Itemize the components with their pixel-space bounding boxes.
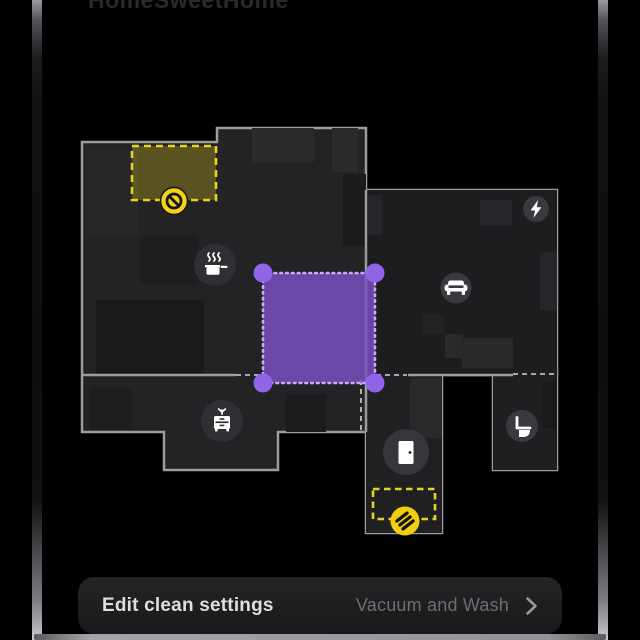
zone-handle-bottom-left[interactable]: [254, 374, 273, 393]
robot-vacuum-map-screen: HomeSweetHome: [0, 0, 640, 640]
phone-bezel-bottom: [34, 634, 606, 640]
dresser-icon[interactable]: [201, 400, 243, 442]
couch-icon[interactable]: [441, 273, 472, 304]
no-mop-stripes-icon[interactable]: [391, 507, 420, 536]
door-icon[interactable]: [383, 429, 429, 475]
lightning-bolt-icon[interactable]: [523, 196, 549, 222]
toilet-icon[interactable]: [506, 410, 538, 442]
clean-mode-label: Vacuum and Wash: [356, 595, 509, 616]
bottom-action-bar: Edit clean settings Vacuum and Wash: [78, 577, 562, 634]
no-entry-icon[interactable]: [161, 188, 188, 215]
phone-bezel-right: [598, 0, 608, 640]
phone-bezel-left: [32, 0, 42, 640]
zone-clean[interactable]: [254, 264, 385, 393]
chevron-right-icon: [525, 596, 538, 616]
cooking-pot-icon[interactable]: [194, 244, 236, 286]
floor-map[interactable]: [0, 0, 640, 640]
zone-handle-top-right[interactable]: [366, 264, 385, 283]
edit-clean-settings-button[interactable]: Edit clean settings: [102, 595, 274, 617]
zone-handle-top-left[interactable]: [254, 264, 273, 283]
clean-mode-selector[interactable]: Vacuum and Wash: [356, 595, 538, 616]
zone-handle-bottom-right[interactable]: [366, 374, 385, 393]
